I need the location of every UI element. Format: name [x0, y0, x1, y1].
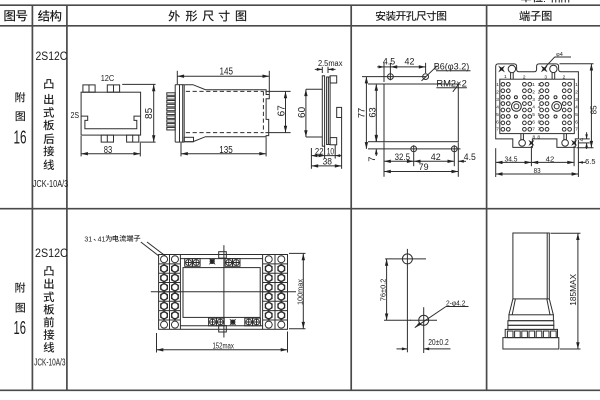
svg-text:3: 3 — [496, 97, 499, 103]
svg-text:76±0.2: 76±0.2 — [379, 279, 388, 302]
svg-text:7: 7 — [496, 127, 499, 133]
svg-text:31: 31 — [84, 234, 92, 243]
svg-text:6: 6 — [532, 119, 535, 125]
svg-text:2: 2 — [538, 90, 541, 96]
svg-text:1: 1 — [504, 74, 507, 80]
svg-text:4.5: 4.5 — [383, 56, 395, 66]
svg-text::: : — [543, 0, 546, 5]
svg-text:3: 3 — [575, 97, 578, 103]
svg-text:2S12C: 2S12C — [35, 246, 68, 260]
svg-text:2: 2 — [563, 75, 566, 81]
svg-text:7: 7 — [538, 127, 541, 133]
svg-text:185MAX: 185MAX — [568, 273, 578, 305]
svg-text:8: 8 — [537, 134, 540, 140]
svg-text:42: 42 — [546, 154, 555, 163]
svg-text:2: 2 — [496, 90, 499, 96]
svg-text:85: 85 — [590, 105, 599, 114]
svg-text:42: 42 — [431, 152, 441, 162]
svg-text:6.5: 6.5 — [585, 157, 595, 166]
svg-text:79: 79 — [419, 162, 429, 172]
svg-text:83: 83 — [534, 168, 541, 175]
svg-text:4: 4 — [532, 104, 535, 110]
svg-text:152max: 152max — [212, 342, 234, 351]
svg-text:2.5max: 2.5max — [318, 59, 343, 68]
svg-text:6: 6 — [496, 119, 499, 125]
svg-text:85: 85 — [144, 107, 155, 119]
svg-text:2S12C: 2S12C — [36, 49, 68, 63]
svg-text:22: 22 — [315, 146, 324, 156]
svg-text:2S: 2S — [71, 110, 80, 120]
svg-text:41: 41 — [98, 234, 106, 243]
svg-text:3: 3 — [532, 97, 535, 103]
svg-text:77: 77 — [357, 108, 367, 118]
svg-text:mm: mm — [551, 0, 570, 6]
svg-text:42: 42 — [405, 56, 415, 66]
svg-text:3: 3 — [544, 75, 547, 81]
svg-text:6: 6 — [538, 119, 541, 125]
svg-text:B6(φ3.2): B6(φ3.2) — [434, 61, 470, 71]
svg-text:5: 5 — [575, 112, 578, 118]
svg-text:4.5: 4.5 — [464, 152, 476, 162]
svg-text:4: 4 — [538, 104, 541, 110]
svg-text:5: 5 — [538, 112, 541, 118]
svg-text:16: 16 — [14, 127, 27, 147]
svg-text:34.5: 34.5 — [505, 154, 518, 163]
svg-text:4: 4 — [496, 104, 499, 110]
svg-text:1: 1 — [538, 82, 541, 88]
svg-text:1: 1 — [532, 82, 535, 88]
svg-text:4: 4 — [575, 104, 578, 110]
svg-text:5: 5 — [496, 112, 499, 118]
svg-text:2-φ4.2: 2-φ4.2 — [446, 299, 466, 308]
svg-text:2: 2 — [575, 90, 578, 96]
svg-text:20±0.2: 20±0.2 — [428, 338, 449, 347]
svg-text:16: 16 — [14, 318, 26, 338]
svg-text:4: 4 — [579, 137, 586, 141]
svg-text:7: 7 — [532, 127, 535, 133]
svg-text:135: 135 — [219, 145, 233, 156]
svg-text:RM2×2: RM2×2 — [436, 78, 467, 88]
svg-text:5: 5 — [532, 112, 535, 118]
svg-text:8: 8 — [532, 134, 535, 140]
svg-text:63: 63 — [367, 107, 377, 117]
svg-text:32.5: 32.5 — [395, 152, 410, 162]
svg-text:JCK-10A/3: JCK-10A/3 — [34, 358, 65, 369]
svg-text:2: 2 — [523, 74, 526, 80]
svg-text:12C: 12C — [101, 73, 115, 83]
svg-text:1: 1 — [496, 82, 499, 88]
svg-text:7: 7 — [367, 157, 377, 162]
svg-text:83: 83 — [104, 145, 113, 156]
svg-text:7: 7 — [575, 127, 578, 133]
svg-text:67: 67 — [276, 105, 287, 117]
svg-text:38: 38 — [323, 157, 332, 167]
svg-text:JCK-10A/3: JCK-10A/3 — [33, 179, 69, 190]
svg-text:100max: 100max — [295, 279, 304, 305]
svg-text:2: 2 — [532, 90, 535, 96]
svg-text:10: 10 — [327, 146, 334, 156]
svg-text:60: 60 — [297, 106, 308, 118]
svg-text:6: 6 — [575, 119, 578, 125]
svg-text:1: 1 — [575, 82, 578, 88]
svg-text:145: 145 — [220, 66, 234, 77]
svg-text:3: 3 — [538, 97, 541, 103]
